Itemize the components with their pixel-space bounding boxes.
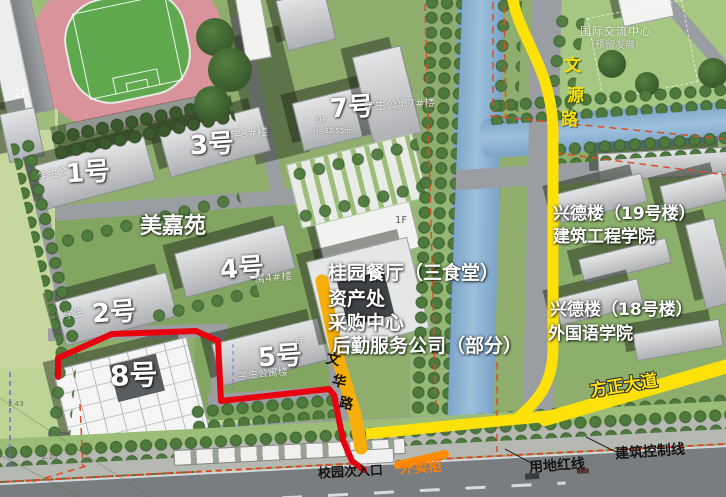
label-assets-office: 资产处 (328, 290, 385, 309)
label-building-7-floors: 9F (316, 117, 327, 126)
lane-dashes (6, 482, 565, 497)
label-intl-center-note: （预留发展） (585, 41, 645, 51)
label-xingde-18: 兴德楼（18号楼） (550, 302, 693, 319)
label-secondary-entrance: 校园次入口 (318, 464, 384, 480)
gate-canopy (350, 448, 395, 465)
label-wenyuan-char-2: 源 (567, 88, 584, 105)
label-building-1: 1号 (65, 158, 111, 187)
campus-map: 1号 学生公 2号 学生 3号 学3#楼 4号 寓4#楼 5号 学生公寓楼 6F… (0, 0, 726, 497)
label-arch-college: 建筑工程学院 (553, 229, 655, 246)
label-takeout-cabinet: 外卖柜 (400, 460, 443, 476)
building-top-center (275, 0, 336, 51)
label-wenyuan-char-3: 路 (561, 112, 578, 129)
label-intl-center: 国际交流中心 (580, 26, 652, 37)
label-wenhua-char-2: 华 (331, 374, 348, 391)
label-procurement-center: 采购中心 (328, 314, 404, 333)
label-wenhua-char-3: 路 (338, 396, 355, 413)
label-meijiayuan: 美嘉苑 (140, 216, 206, 238)
label-building-7-sub: 学生公寓7#楼 (364, 97, 436, 112)
label-floor-2f: 2F (14, 88, 27, 99)
label-foreign-college: 外国语学院 (548, 326, 633, 343)
label-elevation-1: 2.43 (8, 401, 24, 408)
label-elevation-2: 2.10 (42, 454, 58, 461)
label-land-red-line: 用地红线 (529, 457, 586, 475)
label-building-4-sub: 寓4#楼 (254, 270, 293, 284)
label-building-5-floors: 6F (295, 338, 305, 346)
label-canteen: 桂园餐厅（三食堂） (328, 264, 499, 283)
label-logistics-company: 后勤服务公司（部分） (332, 337, 522, 356)
label-floor-1f: 1F (395, 216, 407, 226)
tree-blob-3 (194, 86, 230, 122)
tree-blob-4 (598, 50, 626, 78)
label-building-7-height: H=32.55m (313, 128, 351, 135)
label-building-8: 8号 (110, 361, 158, 391)
label-xingde-19: 兴德楼（19号楼） (553, 206, 696, 223)
label-building-2: 2号 (91, 298, 137, 327)
label-building-3: 3号 (189, 130, 235, 159)
label-wenyuan-char-1: 文 (564, 58, 581, 75)
label-wenhua-char-1: 文 (325, 352, 342, 369)
